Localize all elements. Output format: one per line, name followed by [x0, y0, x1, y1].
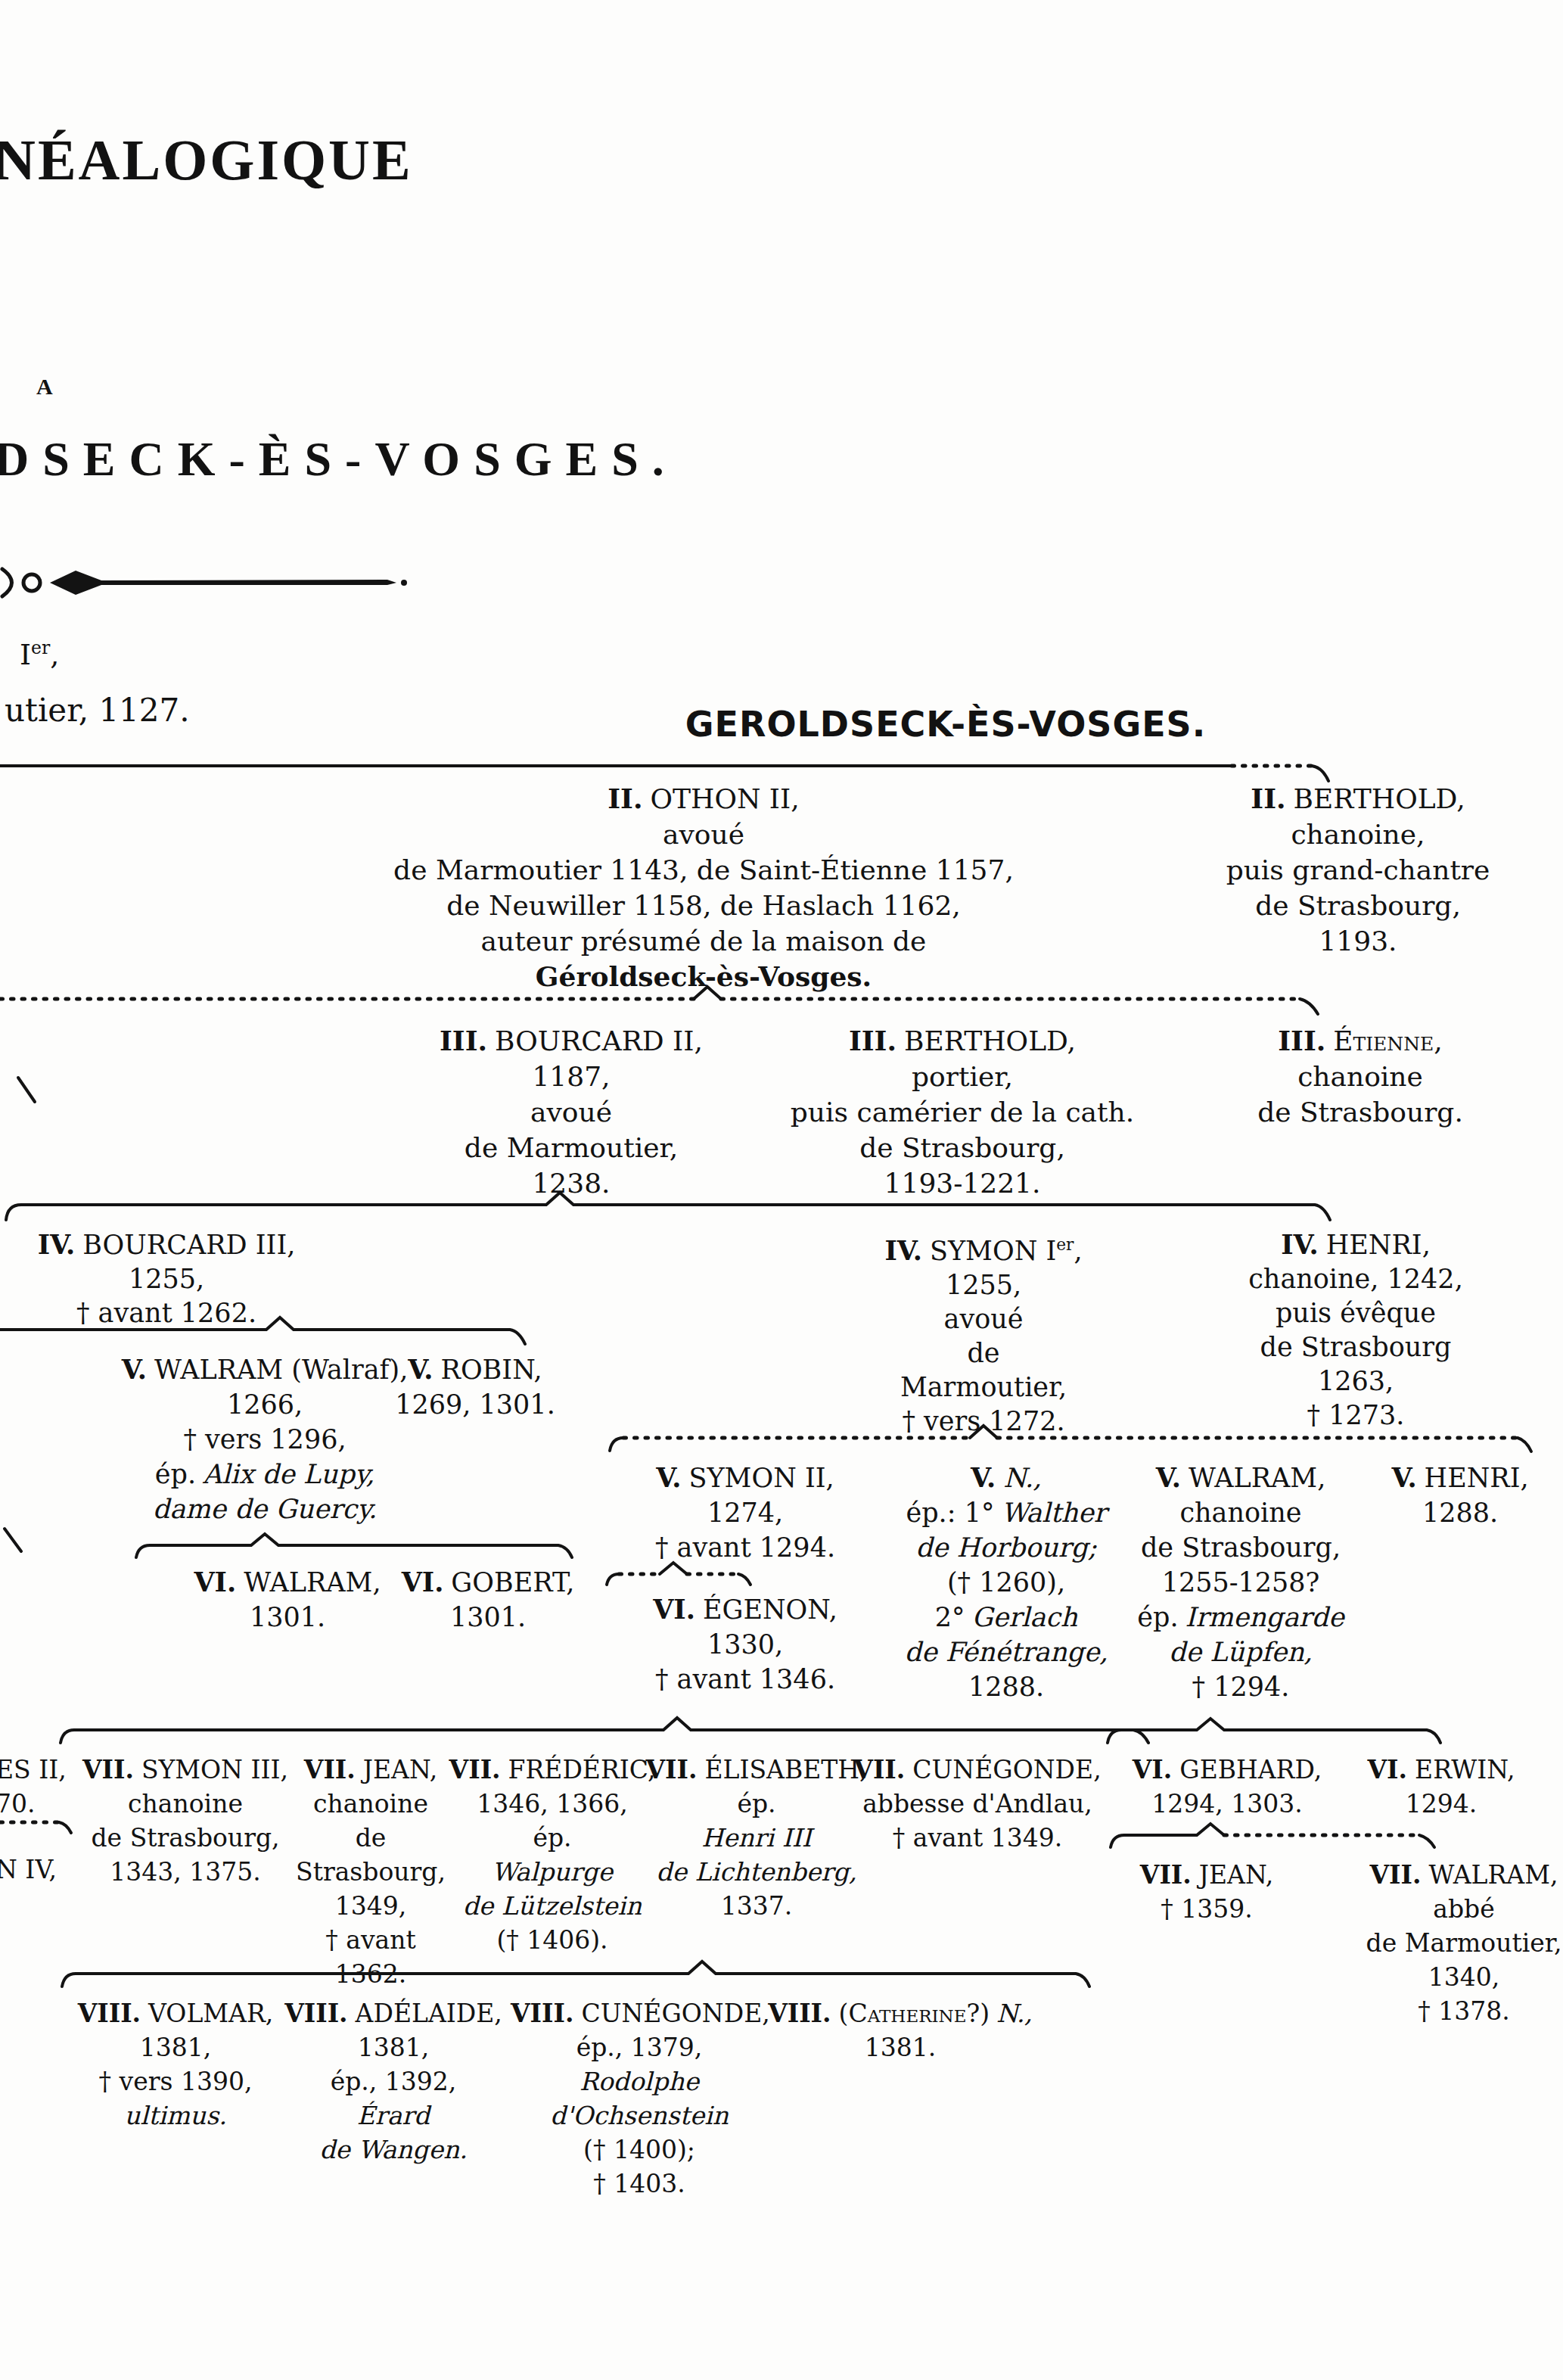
person-line: † avant 1349. — [853, 1821, 1102, 1855]
person-robin: V.ROBIN, 1269, 1301. — [373, 1352, 577, 1422]
ornament-divider — [2, 569, 407, 596]
person-line: 1274, — [620, 1495, 870, 1530]
person-line: 1255, — [859, 1268, 1108, 1302]
person-line: puis grand-chantre — [1192, 852, 1524, 888]
person-name: VII.ÉLISABETH, — [643, 1753, 870, 1787]
person-house-name: Géroldseck-ès-Vosges. — [280, 959, 1127, 994]
person-line: 1346, 1366, — [443, 1787, 662, 1821]
person-cunegonde-vii: VII.CUNÉGONDE, abbesse d'Andlau, † avant… — [853, 1753, 1102, 1855]
person-line: chanoine, — [1192, 817, 1524, 852]
person-line: de Fénétrange, — [881, 1635, 1131, 1669]
person-line: de Strasbourg — [1220, 1330, 1492, 1364]
person-name: VI.GEBHARD, — [1114, 1753, 1341, 1787]
person-line: chanoine — [287, 1787, 454, 1821]
person-name: VI.ÉGENON, — [620, 1592, 870, 1627]
connector-gen8 — [62, 1962, 1089, 1986]
person-line: de Lützelstein — [443, 1889, 662, 1923]
person-name: VI.GOBERT, — [390, 1565, 586, 1600]
person-line: avoué — [280, 817, 1127, 852]
person-berthold-ii: II.BERTHOLD, chanoine, puis grand-chantr… — [1192, 781, 1524, 959]
person-line: Rodolphe — [511, 2064, 768, 2098]
person-walram-vi: VI.WALRAM, 1301. — [189, 1565, 386, 1635]
person-name: VIII.ADÉLAIDE, — [280, 1996, 507, 2030]
person-line: 1269, 1301. — [373, 1387, 577, 1422]
person-bourcard-ii: III.BOURCARD II, 1187, avoué de Marmouti… — [420, 1023, 722, 1201]
person-line: avoué — [859, 1302, 1108, 1336]
person-line: † 1403. — [511, 2167, 768, 2201]
person-name: VIII.CUNÉGONDE, — [511, 1996, 768, 2030]
family-section-title: GEROLDSECK-ÈS-VOSGES. — [643, 704, 1248, 745]
masthead-title-fragment-3: DSECK-ÈS-VOSGES. — [0, 431, 678, 487]
person-line: chanoine — [1112, 1495, 1369, 1530]
person-line: portier, — [788, 1059, 1136, 1094]
person-line: 1381. — [738, 2030, 1063, 2064]
person-line: Henri III — [643, 1821, 870, 1855]
person-line: 1193. — [1192, 923, 1524, 959]
connector-gen6-left — [136, 1534, 572, 1557]
person-line: 1343, 1375. — [61, 1855, 310, 1889]
person-name: VIII.(Catherine?)N., — [738, 1996, 1063, 2030]
person-berthold-iii: III.BERTHOLD, portier, puis camérier de … — [788, 1023, 1136, 1201]
person-name: II.BERTHOLD, — [1192, 781, 1524, 817]
person-line: 1294, 1303. — [1114, 1787, 1341, 1821]
person-line: 1294. — [1350, 1787, 1532, 1821]
person-name: VII.SYMON III, — [61, 1753, 310, 1787]
person-catherine-n: VIII.(Catherine?)N., 1381. — [738, 1996, 1063, 2064]
person-line: ép.Alix de Lupy, — [102, 1457, 427, 1492]
margin-fragment-gen7-date: 70. — [0, 1787, 35, 1821]
person-line: 1187, — [420, 1059, 722, 1094]
person-symon-ii: V.SYMON II, 1274, † avant 1294. — [620, 1461, 870, 1565]
person-walram-vii-abbe: VII.WALRAM, abbé de Marmoutier, 1340, † … — [1339, 1858, 1563, 2028]
person-line: ép.Irmengarde — [1112, 1600, 1369, 1635]
person-line: de Strasbourg, — [61, 1821, 310, 1855]
person-frederic: VII.FRÉDÉRIC, 1346, 1366, ép. Walpurge d… — [443, 1753, 662, 1957]
person-name: V.HENRI, — [1369, 1461, 1551, 1495]
connector-gen6-mid — [607, 1563, 750, 1585]
person-line: ép., 1379, — [511, 2030, 768, 2064]
person-line: chanoine — [61, 1787, 310, 1821]
person-n-v: V.N., ép.: 1°Walther de Horbourg; († 126… — [881, 1461, 1131, 1704]
person-line: † vers 1272. — [859, 1405, 1108, 1439]
person-line: 1301. — [390, 1600, 586, 1635]
person-cunegonde-viii: VIII.CUNÉGONDE, ép., 1379, Rodolphe d'Oc… — [511, 1996, 768, 2201]
person-line: († 1406). — [443, 1923, 662, 1957]
person-jean-vii-1359: VII.JEAN, † 1359. — [1116, 1858, 1297, 1926]
person-line: de Strasbourg, — [788, 1130, 1136, 1165]
person-line: abbé — [1339, 1892, 1563, 1926]
person-line: † vers 1296, — [102, 1422, 427, 1457]
person-line: puis camérier de la cath. — [788, 1094, 1136, 1130]
person-gebhard: VI.GEBHARD, 1294, 1303. — [1114, 1753, 1341, 1821]
person-line: 1238. — [420, 1165, 722, 1201]
person-line: de Neuwiller 1158, de Haslach 1162, — [280, 888, 1127, 923]
person-line: † avant 1346. — [620, 1662, 870, 1697]
person-egenon: VI.ÉGENON, 1330, † avant 1346. — [620, 1592, 870, 1697]
person-name: V.WALRAM, — [1112, 1461, 1369, 1495]
person-line: avoué — [420, 1094, 722, 1130]
person-line: 2°Gerlach — [881, 1600, 1131, 1635]
person-line: de Strasbourg. — [1232, 1094, 1489, 1130]
person-name: VII.WALRAM, — [1339, 1858, 1563, 1892]
person-name: IV.HENRI, — [1220, 1227, 1492, 1262]
person-name: VII.JEAN, — [287, 1753, 454, 1787]
person-line: † avant 1262. — [0, 1296, 340, 1330]
person-line: de — [859, 1336, 1108, 1370]
person-line: Strasbourg, — [287, 1855, 454, 1889]
person-line: de Horbourg; — [881, 1530, 1131, 1565]
masthead-title-fragment-1: NÉALOGIQUE — [0, 127, 413, 193]
person-line: de Strasbourg, — [1112, 1530, 1369, 1565]
person-line: † 1359. — [1116, 1892, 1297, 1926]
person-line: 1193-1221. — [788, 1165, 1136, 1201]
margin-fragment-gen7-name: ES II, — [0, 1753, 67, 1787]
person-line: ép., 1392, — [280, 2064, 507, 2098]
person-line: † 1294. — [1112, 1669, 1369, 1704]
cut-mark-1 — [18, 1078, 35, 1102]
person-erwin: VI.ERWIN, 1294. — [1350, 1753, 1532, 1821]
person-name: III.Étienne, — [1232, 1023, 1489, 1059]
person-line: de Marmoutier 1143, de Saint-Étienne 115… — [280, 852, 1127, 888]
person-name: V.ROBIN, — [373, 1352, 577, 1387]
masthead-title-fragment-2: A — [36, 374, 53, 400]
person-volmar: VIII.VOLMAR, 1381, † vers 1390, ultimus. — [62, 1996, 289, 2133]
person-line: dame de Guercy. — [102, 1492, 427, 1526]
person-line: ultimus. — [62, 2098, 289, 2133]
person-name: VII.FRÉDÉRIC, — [443, 1753, 662, 1787]
connector-gen7 — [61, 1718, 1148, 1743]
person-line: 1288. — [1369, 1495, 1551, 1530]
person-line: chanoine — [1232, 1059, 1489, 1094]
person-line: 1337. — [643, 1889, 870, 1923]
connector-gen7-right — [1111, 1824, 1434, 1847]
person-line: 1349, — [287, 1889, 454, 1923]
person-line: 1301. — [189, 1600, 386, 1635]
cut-mark-2 — [5, 1529, 21, 1551]
person-line: abbesse d'Andlau, — [853, 1787, 1102, 1821]
person-line: † vers 1390, — [62, 2064, 289, 2098]
person-line: 1255-1258? — [1112, 1565, 1369, 1600]
person-name: IV.BOURCARD III, — [0, 1227, 340, 1262]
person-line: ép. — [643, 1787, 870, 1821]
person-name: II.OTHON II, — [280, 781, 1127, 817]
person-henri-iv: IV.HENRI, chanoine, 1242, puis évêque de… — [1220, 1227, 1492, 1433]
person-jean-vii-chanoine: VII.JEAN, chanoine de Strasbourg, 1349, … — [287, 1753, 454, 1991]
person-symon-i: IV.SYMON Ier, 1255, avoué de Marmoutier,… — [859, 1227, 1108, 1439]
person-line: auteur présumé de la maison de — [280, 923, 1127, 959]
person-line: 1288. — [881, 1669, 1131, 1704]
person-name: IV.SYMON Ier, — [859, 1227, 1108, 1268]
person-elisabeth: VII.ÉLISABETH, ép. Henri III de Lichtenb… — [643, 1753, 870, 1923]
person-line: de Strasbourg, — [1192, 888, 1524, 923]
person-line: ép.: 1°Walther — [881, 1495, 1131, 1530]
person-name: VII.CUNÉGONDE, — [853, 1753, 1102, 1787]
person-bourcard-iii: IV.BOURCARD III, 1255, † avant 1262. — [0, 1227, 340, 1330]
person-line: † 1273. — [1220, 1398, 1492, 1433]
person-line: († 1400); — [511, 2133, 768, 2167]
person-line: † avant 1362. — [287, 1923, 454, 1991]
person-line: de Marmoutier, — [420, 1130, 722, 1165]
margin-note-marmoutier: utier, 1127. — [5, 692, 190, 729]
person-line: † avant 1294. — [620, 1530, 870, 1565]
connector-gen6-right — [1108, 1719, 1440, 1743]
person-line: 1381, — [62, 2030, 289, 2064]
person-line: de Lichtenberg, — [643, 1855, 870, 1889]
person-name: VI.WALRAM, — [189, 1565, 386, 1600]
person-line: de Lüpfen, — [1112, 1635, 1369, 1669]
person-line: († 1260), — [881, 1565, 1131, 1600]
person-line: d'Ochsenstein — [511, 2098, 768, 2133]
person-symon-iii: VII.SYMON III, chanoine de Strasbourg, 1… — [61, 1753, 310, 1889]
person-line: de Marmoutier, — [1339, 1926, 1563, 1960]
margin-fragment-gen7-child: N IV, — [0, 1853, 57, 1887]
person-adelaide: VIII.ADÉLAIDE, 1381, ép., 1392, Érard de… — [280, 1996, 507, 2167]
connector-gen2 — [0, 766, 1328, 781]
person-walram-v-chanoine: V.WALRAM, chanoine de Strasbourg, 1255-1… — [1112, 1461, 1369, 1704]
person-line: Érard — [280, 2098, 507, 2133]
person-line: 1330, — [620, 1627, 870, 1662]
person-line: chanoine, 1242, — [1220, 1262, 1492, 1296]
person-line: de — [287, 1821, 454, 1855]
person-name: VII.JEAN, — [1116, 1858, 1297, 1892]
person-line: 1263, — [1220, 1364, 1492, 1398]
person-othon-ii: II.OTHON II, avoué de Marmoutier 1143, d… — [280, 781, 1127, 994]
person-line: Marmoutier, — [859, 1370, 1108, 1405]
person-line: Walpurge — [443, 1855, 662, 1889]
person-name: VI.ERWIN, — [1350, 1753, 1532, 1787]
page-root: { "masthead": { "title_line1": "NÉALOGIQ… — [0, 0, 1563, 2380]
person-name: V.SYMON II, — [620, 1461, 870, 1495]
person-name: V.N., — [881, 1461, 1131, 1495]
margin-note-generation-1: Ier, — [20, 637, 59, 671]
person-line: de Wangen. — [280, 2133, 507, 2167]
person-name: III.BERTHOLD, — [788, 1023, 1136, 1059]
person-line: ép. — [443, 1821, 662, 1855]
person-line: 1255, — [0, 1262, 340, 1296]
person-etienne: III.Étienne, chanoine de Strasbourg. — [1232, 1023, 1489, 1130]
person-line: 1340, — [1339, 1960, 1563, 1994]
person-henri-v: V.HENRI, 1288. — [1369, 1461, 1551, 1530]
person-name: VIII.VOLMAR, — [62, 1996, 289, 2030]
person-line: puis évêque — [1220, 1296, 1492, 1330]
person-name: III.BOURCARD II, — [420, 1023, 722, 1059]
person-line: † 1378. — [1339, 1994, 1563, 2028]
person-line: 1381, — [280, 2030, 507, 2064]
person-gobert: VI.GOBERT, 1301. — [390, 1565, 586, 1635]
